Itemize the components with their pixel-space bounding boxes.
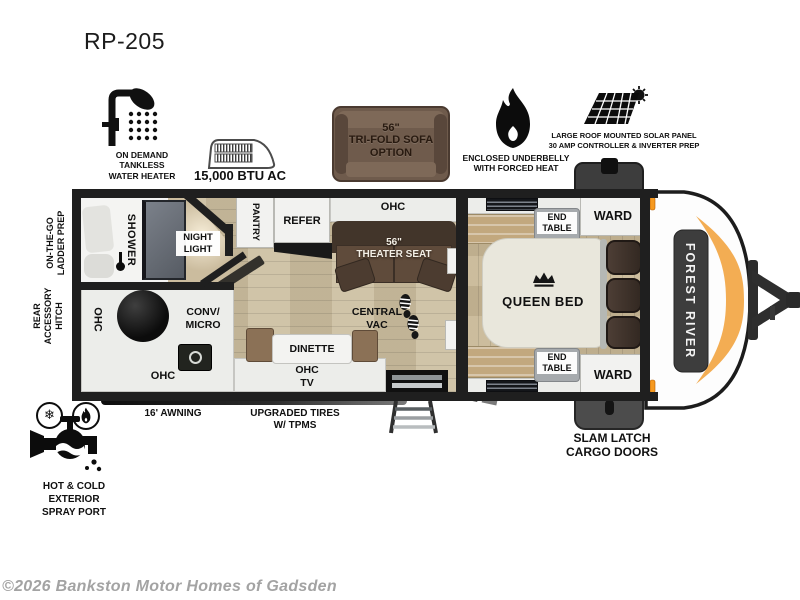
crown-icon: [532, 271, 556, 288]
wall-bottom: [72, 392, 658, 401]
awning-label: 16' AWNING: [128, 408, 218, 420]
page-title: RP-205: [84, 28, 165, 55]
entry-step-1: [392, 375, 442, 380]
pantry-label: PANTRY: [249, 192, 261, 252]
wall-bath-stub: [225, 224, 233, 256]
cargo-doors-label: SLAM LATCH CARGO DOORS: [552, 431, 672, 459]
ohc-tv-label: OHC TV: [283, 364, 331, 390]
sofa-seat: [346, 162, 436, 177]
dinette-label: DINETTE: [272, 343, 352, 356]
pillow: [606, 240, 642, 275]
dinette-bench-left: [246, 328, 274, 362]
solar-label: LARGE ROOF MOUNTED SOLAR PANEL 30 AMP CO…: [546, 131, 702, 151]
tires-label: UPGRADED TIRES W/ TPMS: [240, 408, 350, 432]
entry-ladder: [387, 400, 443, 434]
dinette-bench-right: [352, 330, 378, 362]
wall-top: [72, 189, 658, 198]
entry-door: [386, 370, 448, 394]
conv-micro-label: CONV/ MICRO: [172, 306, 234, 332]
underbelly-label: ENCLOSED UNDERBELLY WITH FORCED HEAT: [456, 153, 576, 174]
forest-river-logo: FOREST RIVER: [683, 243, 697, 359]
hitch-jack: [770, 306, 775, 320]
front-cap: FOREST RIVER: [642, 180, 800, 420]
pillow: [606, 316, 642, 349]
wall-bedroom-partition: [456, 196, 468, 392]
copyright-text: ©2026 Bankston Motor Homes of Gadsden: [2, 578, 422, 596]
sofa-label: 56" TRI-FOLD SOFA OPTION: [342, 122, 440, 159]
ac-label: 15,000 BTU AC: [184, 168, 296, 184]
wall-rear: [72, 189, 81, 401]
cargo-door-handle: [605, 400, 614, 415]
kitchen-sink: [117, 290, 169, 342]
solar-panel-icon: [582, 84, 654, 130]
propane-cover-latch: [601, 158, 618, 174]
refer-label: REFER: [274, 215, 330, 228]
queen-bed-label: QUEEN BED: [482, 294, 604, 310]
end-table-rear-label: END TABLE: [537, 352, 577, 374]
theater-seat-label: 56" THEATER SEAT: [346, 237, 442, 261]
footprints-icon: [397, 293, 423, 341]
ohc-bottom-label: OHC: [130, 370, 196, 383]
ac-unit-icon: [202, 136, 278, 172]
shower-label: SHOWER: [123, 205, 137, 275]
shower-head-arm: [119, 252, 122, 264]
wall-front: [640, 189, 650, 401]
rear-hitch-label: REAR ACCESSORY HITCH: [32, 264, 66, 368]
pillow: [606, 278, 642, 313]
spray-port-icon: [30, 416, 118, 474]
bathroom-vanity: [82, 205, 115, 254]
ward-front-label: WARD: [580, 209, 646, 224]
water-heater-label: ON DEMAND TANKLESS WATER HEATER: [92, 150, 192, 181]
entry-step-2: [392, 383, 442, 388]
toilet: [84, 254, 114, 278]
flame-icon: [490, 86, 536, 150]
end-table-front-label: END TABLE: [537, 212, 577, 234]
wall-bathroom: [72, 282, 234, 290]
ward-rear-label: WARD: [580, 368, 646, 383]
queen-bed: [482, 238, 604, 348]
ohc-rear-label: OHC: [91, 298, 104, 342]
clearance-light-top: [650, 197, 655, 210]
night-light-label: NIGHT LIGHT: [176, 231, 220, 256]
bedroom-window-bottom: [486, 380, 538, 392]
sofa-graphic: 56" TRI-FOLD SOFA OPTION: [332, 106, 450, 182]
stove-burner: [189, 351, 202, 364]
floorplan-page: RP-205 ON DEMAND TANKLESS WATER HEATER 1…: [0, 0, 800, 600]
spray-port-label: HOT & COLD EXTERIOR SPRAY PORT: [16, 480, 132, 519]
bedroom-shelf-bottom: [466, 346, 540, 378]
shower-head-icon: [100, 84, 174, 148]
bedroom-window-top: [486, 198, 538, 211]
ohc-galley-label: OHC: [360, 201, 426, 214]
